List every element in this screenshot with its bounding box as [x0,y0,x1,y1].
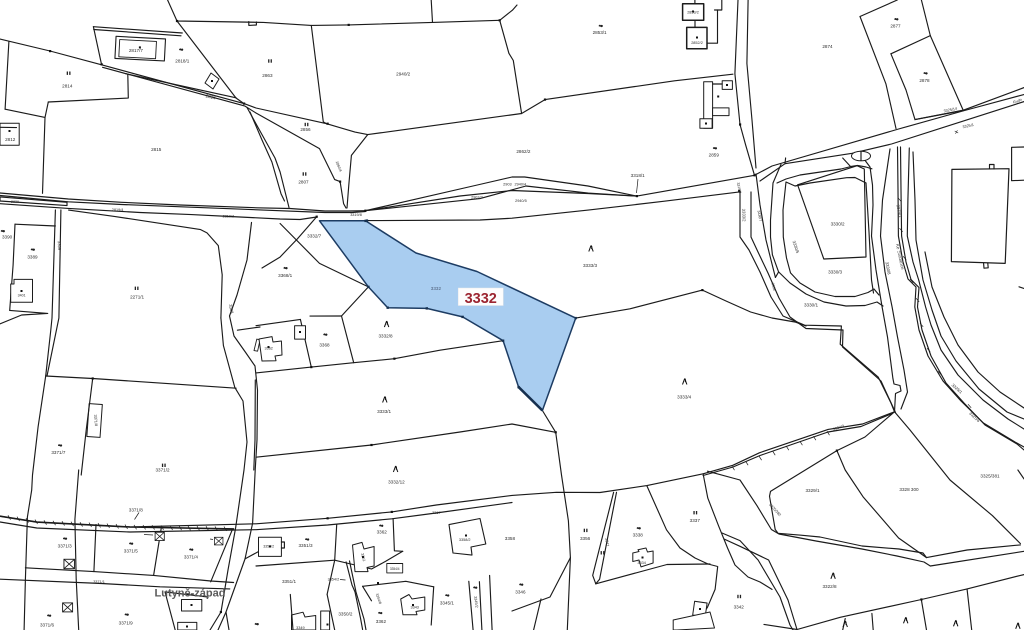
svg-text:3337: 3337 [690,518,701,523]
svg-text:2903: 2903 [503,182,511,186]
svg-text:3371/8: 3371/8 [93,414,98,426]
svg-text:3371/8: 3371/8 [129,507,143,512]
svg-text:3371/7: 3371/7 [51,450,65,455]
svg-text:3371/3: 3371/3 [58,544,72,549]
svg-text:3333/3: 3333/3 [583,263,597,268]
svg-text:3346: 3346 [515,589,526,594]
svg-text:3368: 3368 [319,342,330,347]
svg-text:3371/9: 3371/9 [119,620,133,625]
svg-text:2903/2: 2903/2 [471,196,483,200]
svg-text:2819/2: 2819/2 [223,214,235,218]
svg-text:3362: 3362 [264,346,272,350]
svg-text:2859: 2859 [709,152,720,157]
svg-text:2839: 2839 [11,200,19,204]
svg-text:3354/2: 3354/2 [328,578,340,582]
svg-text:3358/2: 3358/2 [459,538,471,542]
svg-text:3334: 3334 [637,561,645,565]
svg-text:3371/2: 3371/2 [155,467,169,472]
svg-text:3338: 3338 [633,533,644,538]
svg-text:2814: 2814 [62,84,73,89]
svg-text:3332/7: 3332/7 [307,234,321,239]
svg-text:3401: 3401 [18,294,26,298]
svg-text:3332/12: 3332/12 [388,479,405,484]
svg-text:2815: 2815 [151,147,162,152]
svg-text:3329/1: 3329/1 [805,488,819,493]
svg-text:3333/1: 3333/1 [377,409,391,414]
svg-text:3362: 3362 [377,529,388,534]
svg-text:3371/6: 3371/6 [40,622,54,627]
svg-text:3333/2: 3333/2 [741,209,746,223]
svg-text:2817/7: 2817/7 [129,48,143,53]
svg-text:2819/4: 2819/4 [112,208,124,212]
svg-text:3333/4: 3333/4 [677,395,691,400]
svg-text:2807: 2807 [298,179,309,184]
svg-text:2940/2: 2940/2 [396,72,410,77]
svg-text:3358: 3358 [505,536,516,541]
svg-text:2940/4: 2940/4 [515,182,527,186]
svg-text:2877: 2877 [890,23,901,28]
svg-text:2862/2: 2862/2 [516,149,530,154]
svg-text:2853/1: 2853/1 [593,30,607,35]
svg-text:2818/1: 2818/1 [175,59,189,64]
svg-text:3354/4: 3354/4 [390,567,400,571]
svg-text:3332/8: 3332/8 [378,334,392,339]
svg-text:3325/381: 3325/381 [980,474,1000,479]
svg-text:3371/5: 3371/5 [124,549,138,554]
svg-text:2271/1: 2271/1 [130,294,144,299]
svg-text:2940/5: 2940/5 [515,199,527,203]
svg-text:3328 300: 3328 300 [899,487,919,492]
svg-text:3390: 3390 [2,235,13,240]
svg-text:3332: 3332 [465,291,497,307]
svg-text:3309: 3309 [57,241,62,251]
svg-text:3330/3: 3330/3 [828,270,842,275]
svg-text:3356: 3356 [580,536,591,541]
svg-text:3350/2: 3350/2 [338,611,352,616]
svg-text:3332: 3332 [431,286,442,291]
svg-text:3368/1: 3368/1 [278,273,292,278]
svg-text:3351/2: 3351/2 [263,545,274,549]
svg-text:3389: 3389 [27,254,38,259]
svg-text:3351/1: 3351/1 [282,579,296,584]
svg-text:Lutyně-západ: Lutyně-západ [155,588,226,600]
svg-text:3345/1: 3345/1 [440,601,454,606]
svg-text:3319/8: 3319/8 [350,213,362,217]
svg-text:3351/3: 3351/3 [298,543,312,548]
svg-text:3330/1: 3330/1 [804,303,818,308]
svg-text:3330/2: 3330/2 [831,221,845,226]
svg-text:3342: 3342 [734,605,745,610]
svg-text:2852/2: 2852/2 [691,41,703,45]
svg-text:2874: 2874 [822,44,833,49]
svg-text:2863: 2863 [262,73,273,78]
svg-text:3343: 3343 [410,606,418,610]
svg-text:3322/8: 3322/8 [822,584,836,589]
svg-text:3371/1: 3371/1 [93,580,105,584]
svg-text:2853/2: 2853/2 [687,11,699,15]
svg-text:3367: 3367 [432,511,440,515]
svg-text:3318/1: 3318/1 [631,173,645,178]
svg-text:3349: 3349 [296,626,304,630]
svg-text:3362: 3362 [376,619,387,624]
svg-text:2812: 2812 [5,137,16,142]
svg-text:3371/4: 3371/4 [184,554,198,559]
svg-text:2856: 2856 [300,127,311,132]
svg-text:2878: 2878 [919,78,930,83]
